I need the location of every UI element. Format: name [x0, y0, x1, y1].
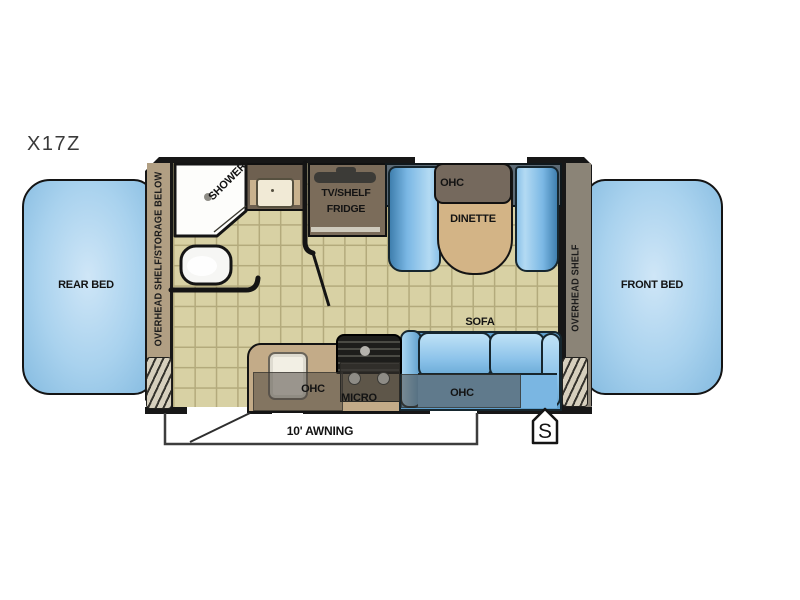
front-entry-step: [562, 357, 588, 407]
burner-left: [348, 372, 361, 385]
bath-sink: [256, 178, 294, 208]
front-bed-label: FRONT BED: [585, 280, 719, 291]
tv-cabinet-step: [311, 227, 380, 232]
stove-knob: [360, 346, 370, 356]
bath-sink-drain: [271, 189, 274, 192]
rear-bed-label: REAR BED: [22, 280, 150, 291]
left-shelf-label: OVERHEAD SHELF/STORAGE BELOW: [154, 172, 165, 347]
right-shelf-label: OVERHEAD SHELF: [571, 244, 582, 331]
sofa-cushion-left: [418, 332, 492, 378]
sofa-ohc-label: OHC: [438, 388, 486, 399]
fridge-label: FRIDGE: [309, 204, 383, 215]
spare-badge-label: S: [538, 420, 552, 443]
floorplan-canvas: X17Z REAR BED FRONT BED OVERHEAD SHELF/S…: [0, 0, 800, 600]
model-title: X17Z: [27, 133, 81, 156]
dinette-bench-right: [515, 166, 559, 272]
sofa-label: SOFA: [448, 317, 512, 328]
tv-icon-base: [336, 167, 356, 174]
entry-door-opening: [187, 407, 250, 414]
entry-door-swing: [190, 413, 250, 442]
burner-right: [377, 372, 390, 385]
awning-label: 10' AWNING: [250, 425, 390, 437]
sofa-cushion-right: [489, 332, 545, 378]
rear-entry-step: [146, 357, 172, 409]
dinette-ohc-label: OHC: [436, 178, 468, 189]
tv-shelf-label: TV/SHELF: [309, 188, 383, 199]
spare-badge: [533, 409, 557, 443]
micro-label: MICRO: [334, 393, 384, 404]
kitchen-ohc-label: OHC: [291, 384, 335, 395]
dinette-label: DINETTE: [437, 214, 509, 225]
